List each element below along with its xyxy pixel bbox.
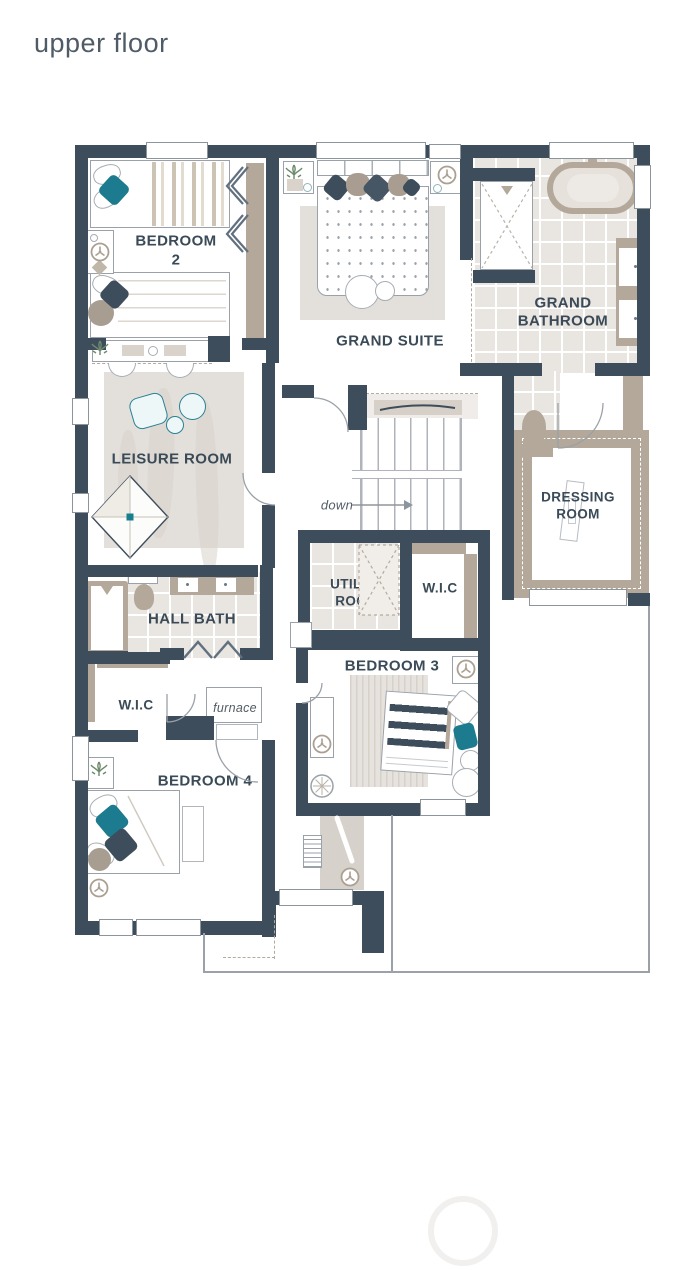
hall-bath-shower [86, 581, 128, 655]
floor-plan-canvas: upper floor down [0, 0, 700, 1270]
bed-sheet-line [386, 756, 448, 762]
window [316, 142, 426, 159]
wall-bedroom2-bottom [242, 338, 266, 350]
wall-wic-right [478, 530, 490, 651]
dressing-room-label-line2: ROOM [556, 507, 600, 522]
wall-bedroom2-bottom [208, 336, 230, 362]
dartboard-icon [311, 775, 333, 797]
stairs-upper-flight [360, 418, 462, 471]
stair-niche-dash [366, 393, 478, 394]
utility-room-label-line2: ROOM [335, 594, 379, 609]
nook-desk [320, 812, 364, 890]
bedroom4-plant-stand [86, 757, 114, 789]
window [72, 736, 89, 781]
counter-sink [148, 346, 158, 356]
window [420, 799, 466, 816]
nightstand-mat [287, 179, 303, 191]
window [529, 589, 627, 606]
wall-hallbath-right [260, 565, 273, 660]
wall-bedroom3-right [478, 651, 490, 816]
stairs-lower-flight [360, 479, 462, 530]
round-cushion [88, 848, 111, 871]
wall-shower-top [473, 168, 535, 181]
stair-niche-shelf [374, 400, 462, 415]
wall-leisure-right [262, 363, 275, 473]
hall-bath-label: HALL BATH [148, 611, 236, 628]
bedroom2-label-line2: 2 [172, 252, 181, 269]
wall-bedroom4-top-block [166, 716, 214, 740]
stairs-down-label: down [321, 498, 353, 513]
bedroom3-desk [310, 697, 334, 758]
bedroom4-bench [182, 806, 204, 862]
nightstand-cup [90, 234, 98, 242]
bedroom2-bed-top-blanket [152, 162, 228, 226]
bedroom3-label: BEDROOM 3 [345, 658, 439, 675]
dressing-room-wardrobe-top [623, 368, 643, 430]
doorway-dash [471, 258, 472, 362]
bedroom4-door [216, 724, 258, 740]
furnace-label: furnace [213, 701, 257, 715]
window [146, 142, 208, 159]
wall-hallbath-top [125, 565, 258, 577]
wall-bedroom3-top [400, 638, 490, 651]
bedroom2-label-line1: BEDROOM [135, 233, 216, 250]
wall-utility-wic [400, 543, 412, 638]
wall-utility-top [298, 530, 490, 543]
sink-drain [186, 583, 189, 586]
wic-middle-wardrobe-top [412, 543, 466, 554]
roof-dash [223, 957, 275, 958]
roof-outline [391, 815, 393, 973]
utility-room-label-line1: UTILITY [330, 577, 384, 592]
door-arc [314, 398, 348, 432]
dressing-room-label-line1: DRESSING [541, 490, 615, 505]
bedroom2-bed-bottom-blanket [118, 276, 226, 334]
leisure-room-label: LEISURE ROOM [112, 451, 233, 468]
bedroom3-nightstand [452, 656, 480, 684]
window [72, 398, 89, 425]
wall-nook-block [362, 891, 384, 953]
wall-bedroom4-top [88, 730, 138, 742]
bifold-door-icon [227, 215, 248, 252]
wall-dressing-corner [628, 593, 650, 606]
wall-bedroom3-left [296, 703, 308, 805]
wic-middle-wardrobe-side [464, 554, 477, 646]
window [634, 165, 651, 209]
wic-bedroom4-label: W.I.C [119, 698, 154, 713]
page-title: upper floor [34, 28, 169, 59]
window [136, 919, 201, 936]
roof-outline [648, 606, 650, 973]
wall-hallbath-top [75, 565, 125, 577]
nightstand-cup [303, 183, 312, 192]
wall-bath-bottom-right [595, 363, 650, 376]
wall-landing-dressing [502, 376, 514, 600]
roof-dash [274, 915, 275, 959]
stairs-landing-rail [352, 470, 462, 479]
wall-bedroom4-right [262, 740, 275, 893]
window [549, 142, 634, 159]
wall-bedroom2-suite [266, 145, 279, 363]
hall-toilet-bowl [134, 584, 154, 610]
bed-sheet-line [386, 762, 448, 768]
bifold-door-icon [227, 167, 248, 204]
wall-hallbath-bottom [240, 648, 262, 660]
nook-ladder-shelf [303, 835, 322, 868]
grand-bathroom-label-line1: GRAND [535, 295, 592, 312]
counter-item [164, 345, 186, 356]
bedroom3-bed [380, 691, 457, 776]
bedroom3-pouf [452, 768, 481, 797]
wall-suite-south [282, 385, 314, 398]
roof-outline [203, 971, 650, 973]
wall-shower-bottom [473, 270, 535, 283]
bedroom4-label: BEDROOM 4 [158, 773, 252, 790]
bean-bag-round [179, 393, 206, 420]
wall-wic4-top [84, 652, 170, 664]
grand-suite-label: GRAND SUITE [336, 333, 444, 350]
shower [480, 181, 533, 270]
wall-exterior-left [75, 145, 88, 935]
teal-pillow [452, 722, 478, 751]
rug-tree-motif [118, 430, 138, 545]
door-arc [243, 473, 275, 505]
suite-pouf-small [375, 281, 395, 301]
nightstand-cup [433, 184, 442, 193]
wall-stair-step [348, 385, 367, 430]
window [279, 889, 353, 906]
window [429, 144, 461, 159]
bathtub-inner [567, 174, 619, 202]
wall-leisure-right [262, 505, 275, 568]
wall-bedroom3-left [296, 650, 308, 683]
counter-item [122, 345, 144, 356]
grand-bathroom-label-line2: BATHROOM [518, 313, 608, 330]
wall-wc-top [460, 363, 542, 376]
wic-middle-label: W.I.C [423, 581, 458, 596]
bedroom2-closet-wardrobe [246, 163, 264, 343]
bedroom3-bed-blanket [387, 697, 452, 749]
photo-watermark [428, 1196, 498, 1266]
sink-drain [224, 583, 227, 586]
window [72, 493, 89, 513]
utility-door [290, 622, 312, 648]
wall-suite-bath [460, 145, 473, 260]
toilet [522, 410, 546, 444]
window [99, 919, 133, 936]
suite-pouf [345, 275, 379, 309]
bean-bag-round-small [166, 416, 184, 434]
wall-utility-left [298, 543, 310, 625]
toilet-base [515, 444, 553, 457]
roof-outline [203, 933, 205, 973]
ceiling-fan-icon [91, 880, 108, 897]
wall-bedroom2-bottom [88, 338, 106, 350]
